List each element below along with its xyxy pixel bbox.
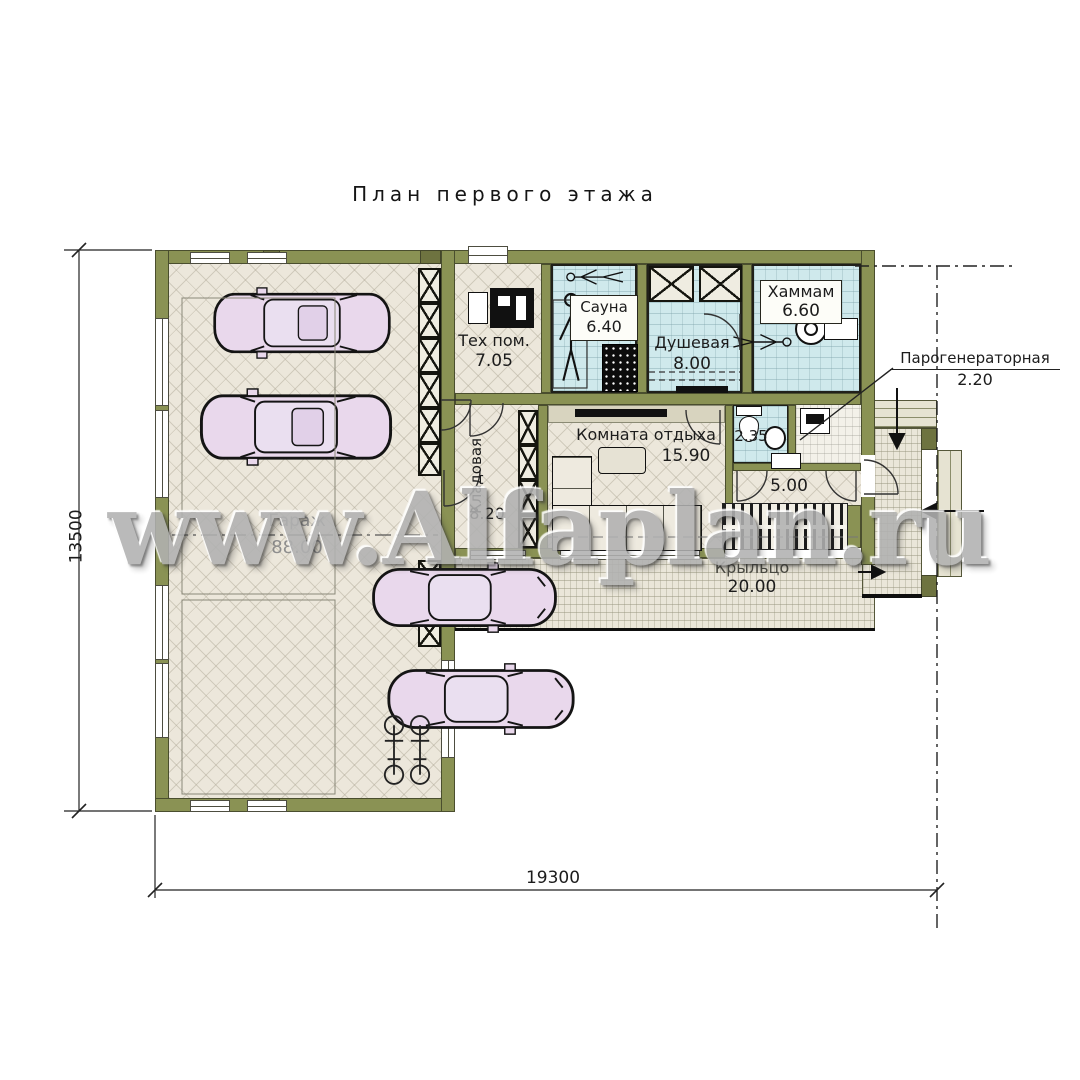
tech-room-name: Тех пом. bbox=[444, 332, 544, 350]
porch-area: 20.00 bbox=[692, 578, 812, 597]
window-garage-right-1 bbox=[441, 660, 455, 706]
shower-cabin-2 bbox=[699, 266, 742, 302]
entry-porch-edge bbox=[862, 594, 922, 598]
entry-step-right bbox=[937, 450, 962, 577]
window-bottom-2 bbox=[247, 800, 287, 812]
window-top-2 bbox=[247, 252, 287, 264]
garage-shelf-4 bbox=[418, 373, 441, 408]
lounge-area: 15.90 bbox=[626, 447, 746, 466]
boiler-detail-2 bbox=[515, 295, 527, 321]
page-title: План первого этажа bbox=[230, 182, 780, 206]
entry-porch-block-bottom bbox=[921, 575, 937, 597]
shower-area: 8.00 bbox=[642, 355, 742, 374]
storage-area: 8.20 bbox=[452, 505, 522, 523]
dimension-left-label: 13500 bbox=[68, 481, 87, 591]
sauna-stove-icon bbox=[602, 344, 638, 392]
garage-shelf-6 bbox=[418, 443, 441, 476]
storage-shelf-1 bbox=[518, 410, 538, 445]
hammam-area: 6.60 bbox=[751, 302, 851, 321]
tech-room-floor bbox=[455, 264, 541, 393]
floor-plan-page: План первого этажа bbox=[0, 0, 1080, 1080]
window-storage-porch bbox=[470, 550, 526, 560]
boiler-unit-icon bbox=[468, 292, 488, 324]
garage-shelf-7 bbox=[418, 560, 441, 589]
entry-porch-block-top bbox=[921, 428, 937, 450]
garage-shelf-2 bbox=[418, 303, 441, 338]
window-left-2 bbox=[155, 410, 169, 498]
garage-shelf-5 bbox=[418, 408, 441, 443]
garage-shelf-9 bbox=[418, 618, 441, 647]
lounge-name: Комната отдыха bbox=[561, 426, 731, 444]
window-left-1 bbox=[155, 318, 169, 406]
tv-fireplace bbox=[575, 409, 667, 417]
hammam-name: Хаммам bbox=[751, 283, 851, 301]
wall-pier-2 bbox=[420, 250, 441, 264]
hall-cabinet-icon bbox=[771, 453, 801, 469]
porch-floor bbox=[455, 558, 875, 630]
window-garage-right-2 bbox=[441, 712, 455, 758]
wall-sauna-left bbox=[541, 264, 551, 393]
shower-cabin-1 bbox=[649, 266, 694, 302]
garage-area: 88.00 bbox=[247, 538, 347, 558]
window-bottom-1 bbox=[190, 800, 230, 812]
dimension-bottom-label: 19300 bbox=[498, 869, 608, 888]
sofa-seat-section bbox=[552, 505, 702, 551]
wc-area: 2.35 bbox=[727, 428, 775, 445]
wall-wet-rooms-bottom bbox=[455, 393, 861, 405]
garage-shelf-8 bbox=[418, 589, 441, 618]
sauna-area: 6.40 bbox=[561, 318, 647, 336]
tech-room-area: 7.05 bbox=[444, 352, 544, 371]
wall-storage-right bbox=[538, 405, 548, 555]
boiler-icon bbox=[490, 288, 534, 328]
window-left-4 bbox=[155, 663, 169, 738]
shower-bench bbox=[676, 386, 728, 393]
window-left-3 bbox=[155, 585, 169, 660]
entry-arrow-left bbox=[922, 504, 936, 518]
porch-edge bbox=[455, 628, 875, 631]
window-top-tech bbox=[468, 246, 508, 264]
porch-stairs bbox=[722, 503, 848, 550]
sauna-name: Сауна bbox=[561, 299, 647, 316]
garage-shelf-1 bbox=[418, 268, 441, 303]
shower-name: Душевая bbox=[642, 334, 742, 352]
garage-name: Гараж bbox=[247, 512, 347, 531]
porch-name: Крыльцо bbox=[692, 559, 812, 577]
storage-shelf-2 bbox=[518, 445, 538, 480]
hall-area: 5.00 bbox=[759, 477, 819, 496]
toilet-tank-icon bbox=[736, 406, 762, 416]
steamgen-name: Парогенераторная bbox=[890, 350, 1060, 370]
steamgen-area: 2.20 bbox=[890, 371, 1060, 389]
window-lounge-porch bbox=[560, 550, 700, 560]
garage-floor bbox=[169, 264, 441, 798]
hammam-bowl-inner bbox=[804, 322, 818, 336]
garage-shelf-3 bbox=[418, 338, 441, 373]
window-top-1 bbox=[190, 252, 230, 264]
steam-generator-detail bbox=[806, 414, 824, 424]
wall-main-right bbox=[861, 250, 875, 565]
entry-door-opening bbox=[861, 455, 875, 497]
boiler-detail bbox=[497, 295, 511, 307]
